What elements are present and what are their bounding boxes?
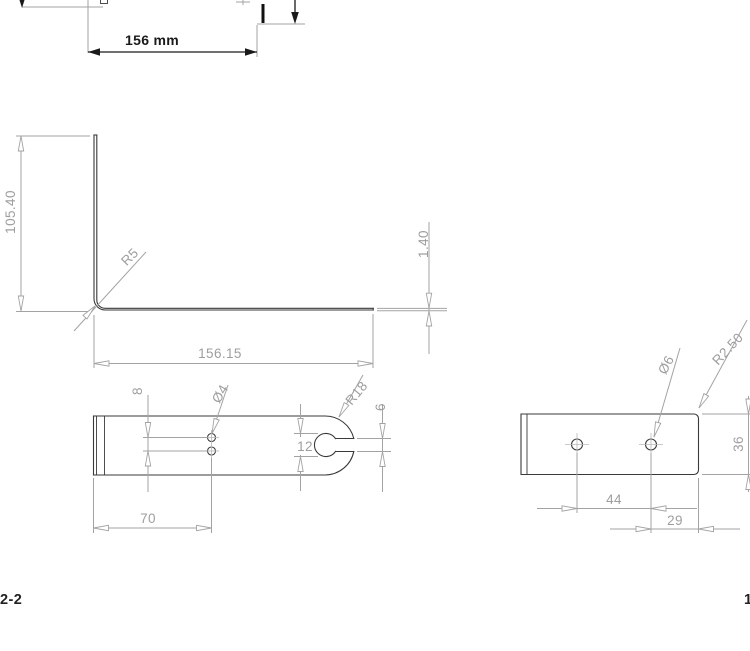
arrow-right-icon	[358, 361, 373, 366]
end-arc-bottom	[325, 452, 354, 476]
keyhole-circle	[314, 434, 335, 457]
end-view: Ø6 R2.50 36 44 29	[521, 320, 750, 533]
edge-mark	[262, 4, 265, 23]
arrow-icon	[697, 394, 709, 410]
side-view: 105.40 R5 156.15 1.40	[3, 135, 447, 368]
plan-view: 8 Ø4 R18 12 6 70	[94, 375, 392, 533]
arrow-right-icon	[562, 506, 577, 511]
arrow-icon	[209, 418, 219, 434]
dim-length: 156.15	[198, 346, 242, 361]
arrow-up-icon	[18, 136, 23, 151]
arrow-down-icon	[380, 424, 385, 439]
inner-profile	[97, 135, 373, 308]
arrow-icon	[651, 422, 660, 438]
arrow-down-icon	[18, 296, 23, 311]
arrow-down-icon	[145, 423, 150, 438]
arrow-right-icon	[636, 526, 651, 531]
arrow-up-icon	[746, 475, 750, 490]
engineering-drawing: 156 mm 105.40 R5 156.15 1.40	[0, 0, 750, 651]
arrow-left-icon	[651, 506, 666, 511]
dim-width: 36	[731, 436, 746, 452]
arrow-up-icon	[145, 451, 150, 466]
end-arc-top	[325, 416, 354, 439]
top-view: 156 mm	[18, 0, 305, 57]
dim-overall-width: 156 mm	[125, 32, 179, 48]
arrow-icon	[337, 403, 349, 419]
dim-hole-diameter: Ø6	[655, 353, 677, 377]
dim-bend-radius: R5	[118, 245, 141, 268]
dim-thickness: 1.40	[416, 230, 431, 258]
outer-profile	[94, 135, 373, 310]
base-outline	[521, 414, 699, 475]
dim-hole-pitch: 44	[606, 492, 622, 507]
arrow-up-icon	[380, 452, 385, 467]
arrow-down-icon	[291, 12, 299, 24]
cutoff-symbol	[101, 0, 108, 4]
dim-hole-position: 70	[140, 511, 156, 526]
arrow-down-icon	[298, 419, 303, 434]
section-label-left: 2-2	[0, 592, 22, 608]
arrow-up-icon	[426, 311, 431, 326]
dim-height: 105.40	[3, 190, 18, 234]
arrow-left-icon	[94, 361, 109, 366]
dim-slot-width: 6	[373, 403, 388, 411]
radius-leader	[74, 252, 146, 331]
section-label-right: 1	[744, 592, 750, 608]
dim-slot-circle: 12	[297, 439, 313, 454]
dim-hole-pitch: 8	[130, 387, 145, 395]
arrow-right-icon	[245, 48, 257, 56]
arrow-left-icon	[94, 525, 109, 530]
dim-edge-distance: 29	[667, 513, 683, 528]
arrow-left-icon	[699, 526, 714, 531]
dim-corner-radius: R2.50	[709, 330, 746, 368]
arrow-down-icon	[426, 293, 431, 308]
drawing-canvas: 156 mm 105.40 R5 156.15 1.40	[0, 0, 750, 651]
arrow-down-icon	[746, 399, 750, 414]
arrow-right-icon	[197, 525, 212, 530]
arrow-up-icon	[298, 457, 303, 472]
section-labels: 2-2 1	[0, 592, 750, 608]
arrow-left-icon	[88, 48, 100, 56]
